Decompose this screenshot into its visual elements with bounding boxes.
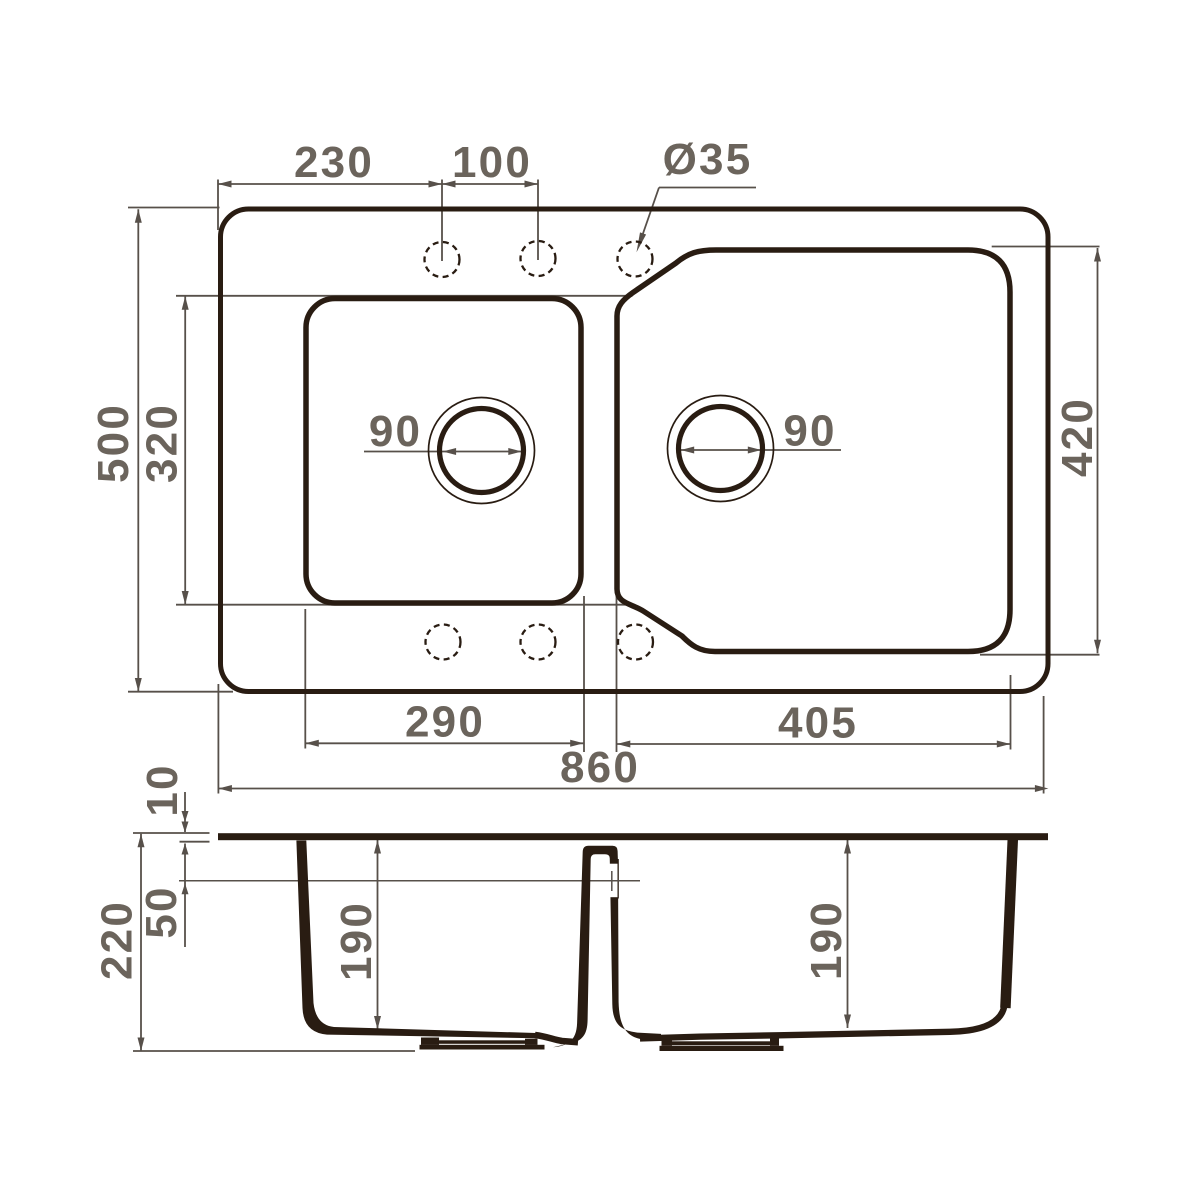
svg-text:90: 90 [783,406,836,455]
svg-text:220: 220 [92,900,141,980]
svg-text:190: 190 [802,900,851,980]
svg-text:290: 290 [405,697,485,746]
svg-text:90: 90 [369,407,422,456]
svg-text:190: 190 [332,901,381,981]
svg-text:500: 500 [89,403,138,483]
svg-text:860: 860 [560,743,640,792]
svg-text:420: 420 [1053,397,1102,477]
svg-text:405: 405 [778,698,858,747]
svg-text:320: 320 [137,403,186,483]
svg-text:10: 10 [138,763,187,816]
svg-text:100: 100 [452,138,532,187]
svg-text:Ø35: Ø35 [663,135,753,184]
svg-text:230: 230 [294,138,374,187]
svg-text:50: 50 [137,885,186,938]
